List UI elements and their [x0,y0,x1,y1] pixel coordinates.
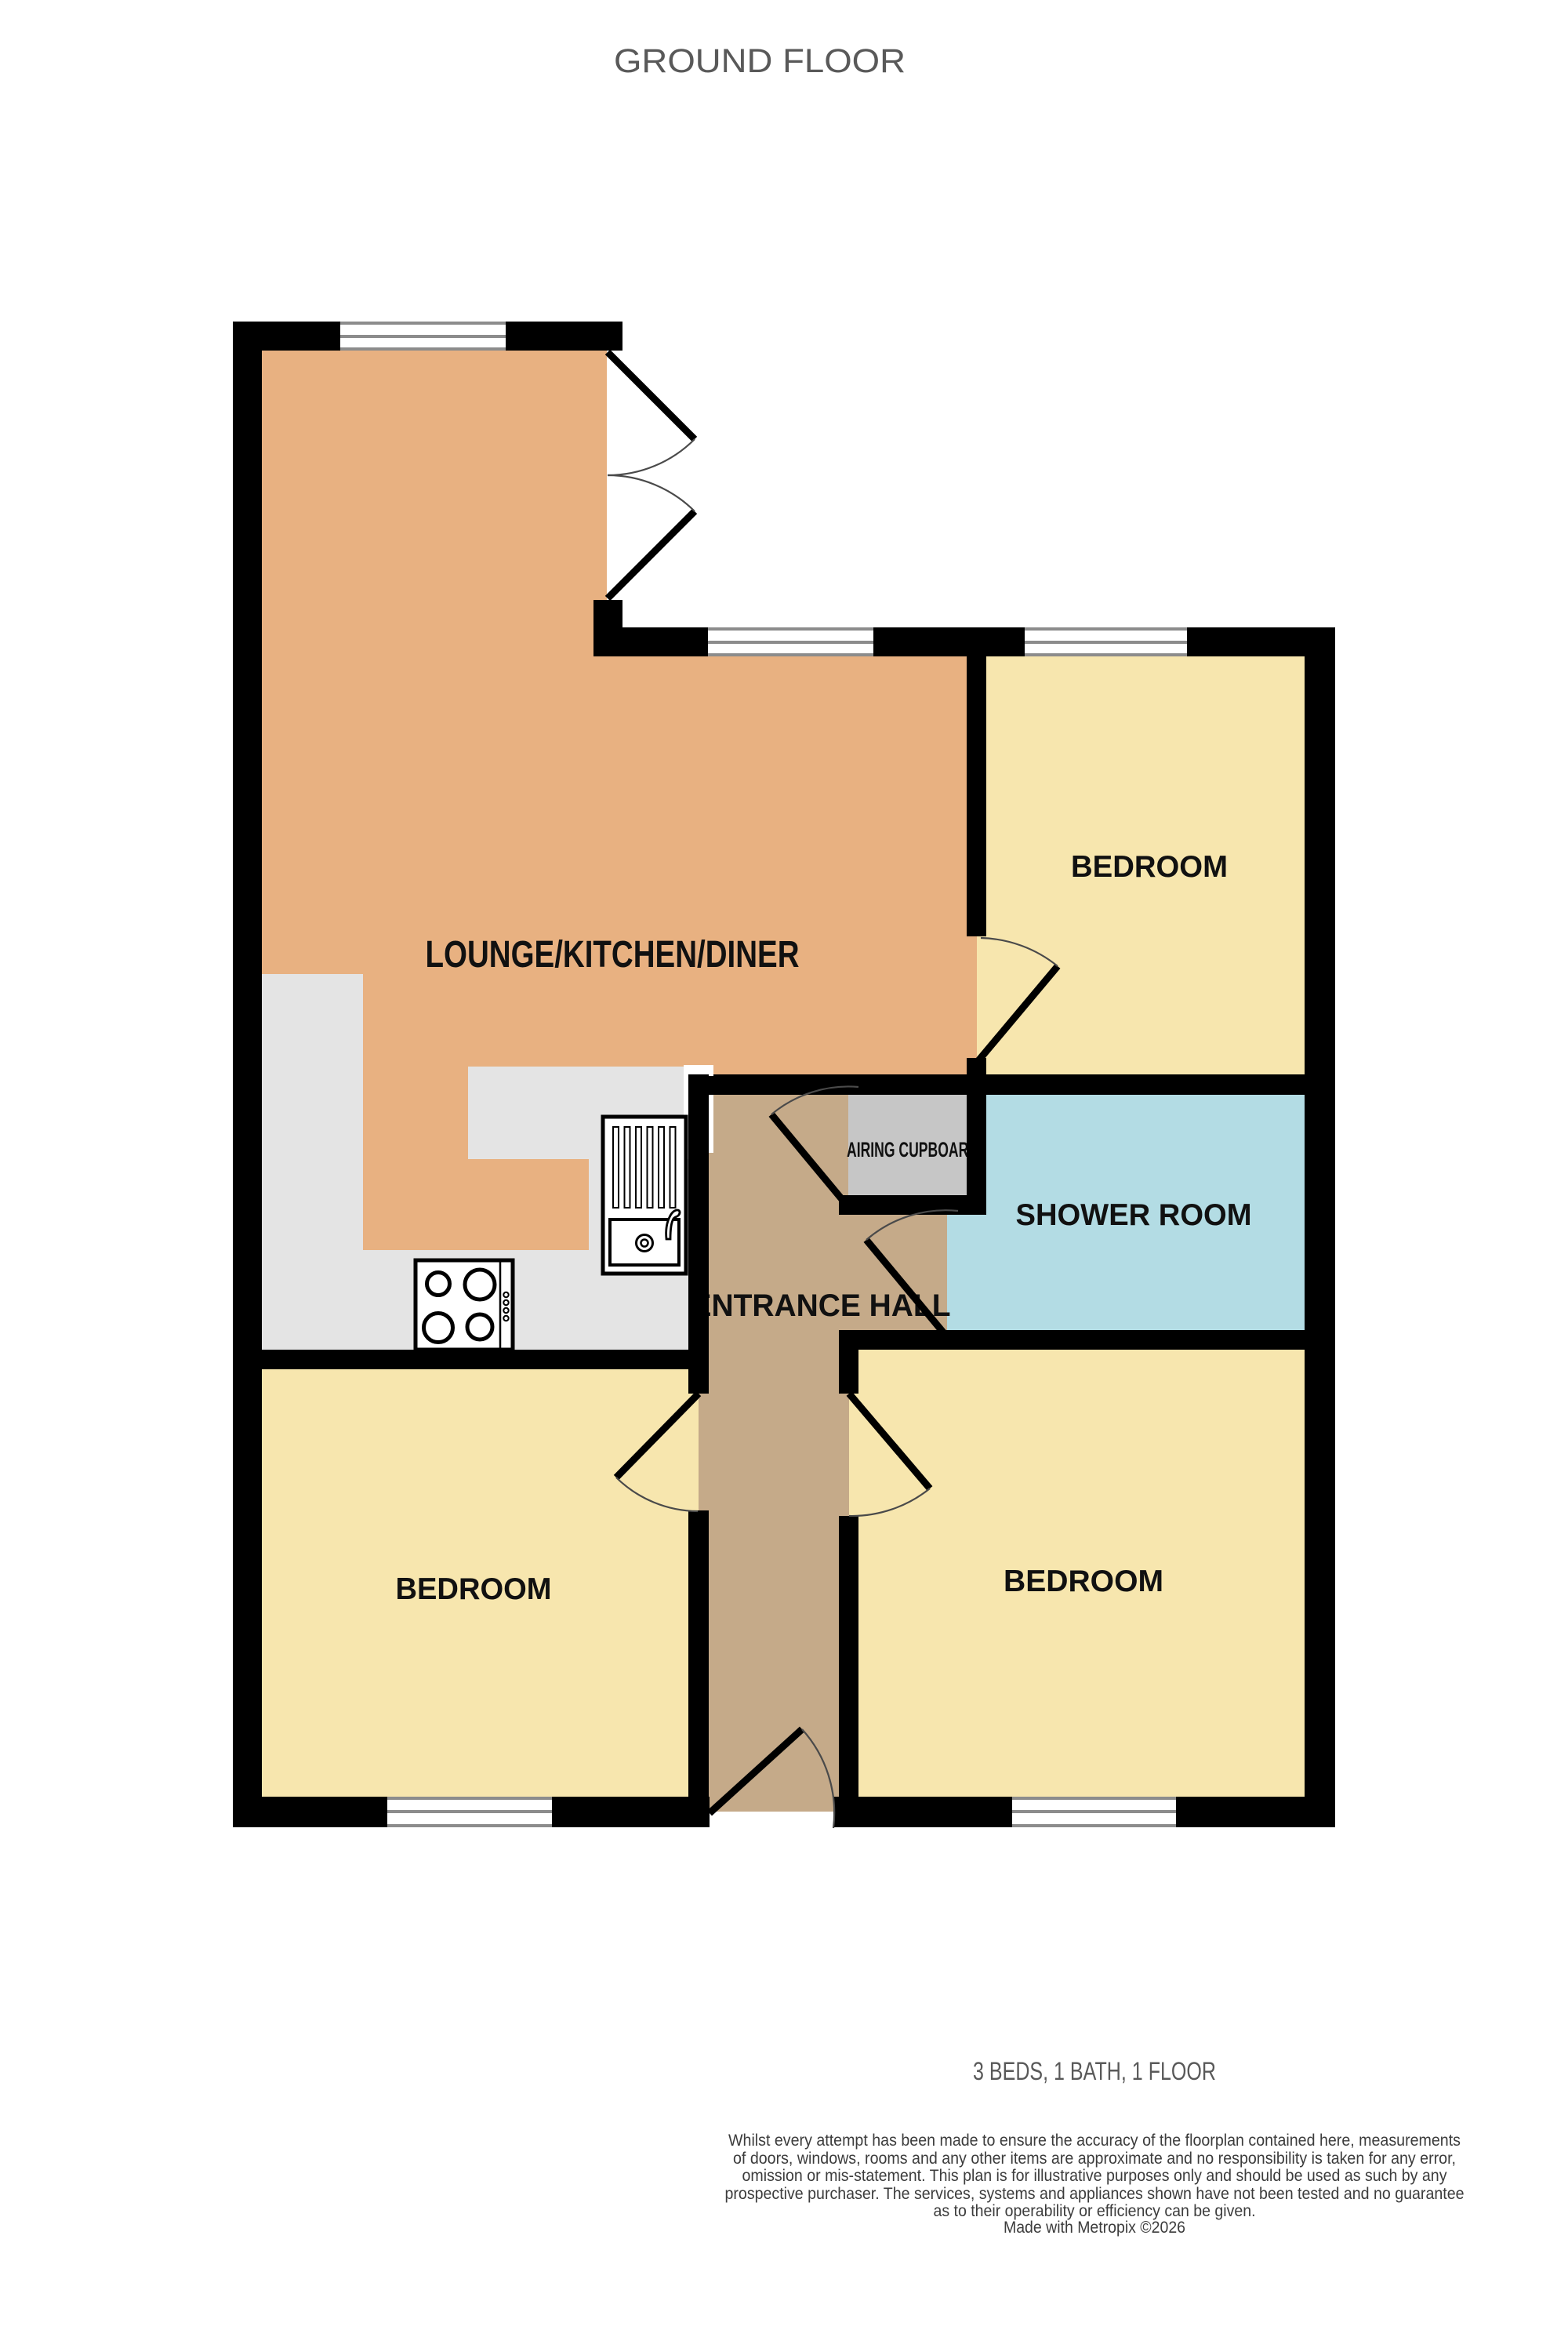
svg-text:omission or mis-statement. Thi: omission or mis-statement. This plan is … [742,2166,1447,2185]
svg-text:3 BEDS, 1 BATH, 1 FLOOR: 3 BEDS, 1 BATH, 1 FLOOR [973,2057,1216,2085]
svg-text:GROUND FLOOR: GROUND FLOOR [614,42,906,80]
svg-text:BEDROOM: BEDROOM [396,1572,552,1606]
svg-text:prospective purchaser. The ser: prospective purchaser. The services, sys… [725,2184,1465,2203]
svg-text:of doors, windows, rooms and a: of doors, windows, rooms and any other i… [733,2149,1456,2168]
svg-text:SHOWER ROOM: SHOWER ROOM [1016,1198,1252,1232]
svg-text:LOUNGE/KITCHEN/DINER: LOUNGE/KITCHEN/DINER [426,934,800,976]
svg-text:BEDROOM: BEDROOM [1004,1565,1163,1598]
svg-text:Whilst every attempt has been: Whilst every attempt has been made to en… [728,2131,1461,2150]
svg-text:Made with Metropix ©2026: Made with Metropix ©2026 [1004,2218,1185,2237]
svg-text:AIRING CUPBOARD: AIRING CUPBOARD [847,1138,978,1161]
svg-text:BEDROOM: BEDROOM [1071,850,1228,884]
